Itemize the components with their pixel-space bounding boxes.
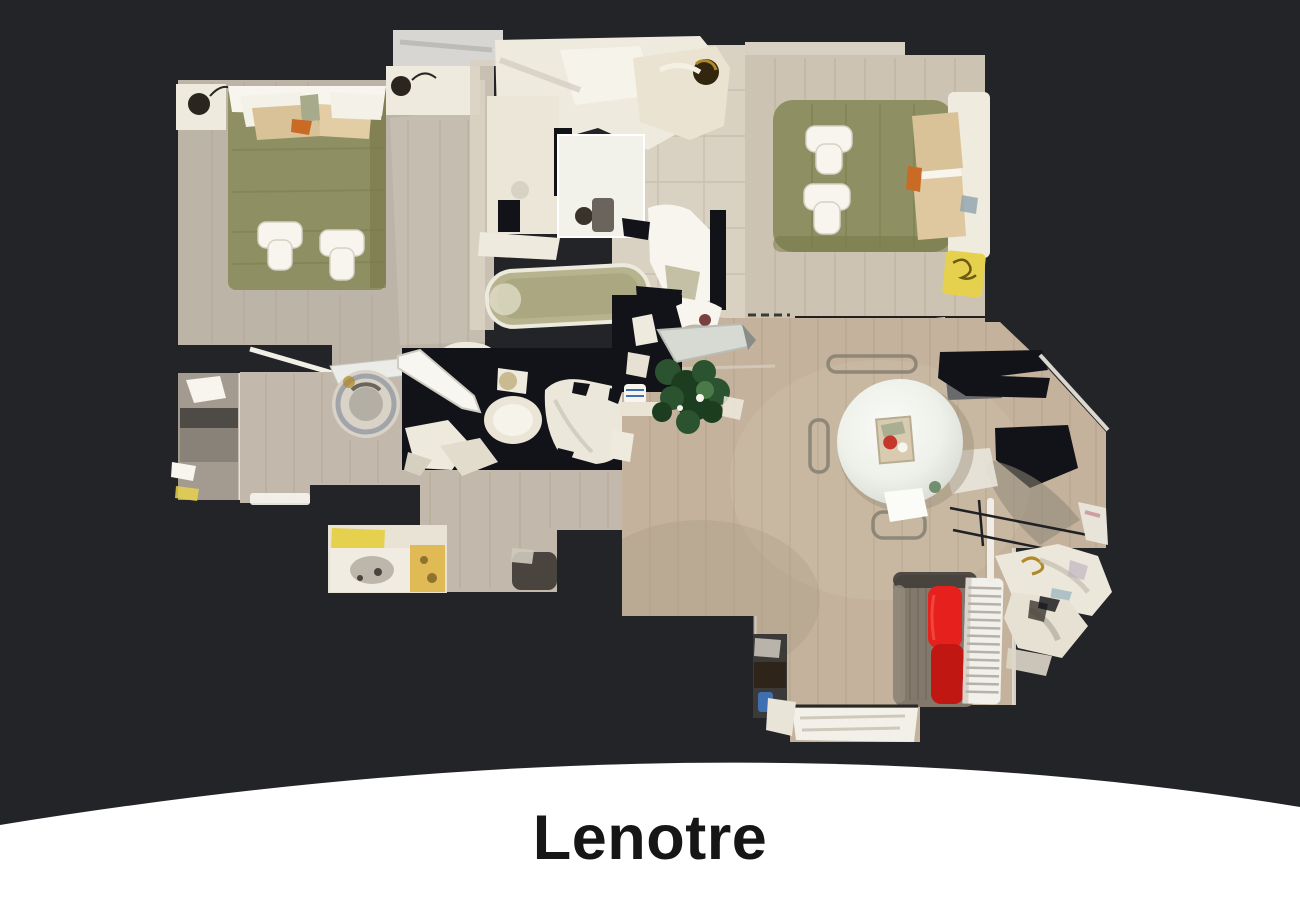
bedside-lamp-icon xyxy=(391,76,411,96)
dark-stool xyxy=(511,548,557,590)
washing-machine xyxy=(332,370,400,438)
yellow-bath-mat xyxy=(410,545,445,592)
window-sill xyxy=(766,698,918,742)
orange-accent xyxy=(906,166,922,192)
small-bathroom xyxy=(328,525,447,593)
room-middle-wing xyxy=(171,348,627,593)
shower-cabin xyxy=(487,96,559,234)
open-door xyxy=(250,349,336,374)
listing-title: Lenotre xyxy=(0,802,1300,874)
bedside-lamp-icon xyxy=(188,93,210,115)
floorplan-svg xyxy=(0,0,1300,900)
screenshot-root: Lenotre xyxy=(0,0,1300,900)
door-threshold xyxy=(250,493,310,505)
table-tray xyxy=(876,417,914,464)
yellow-towel xyxy=(942,250,986,298)
room-living-dining xyxy=(580,295,1112,742)
desk xyxy=(180,408,238,428)
bed-left xyxy=(228,86,386,290)
bed-right xyxy=(773,92,990,258)
shower-room xyxy=(398,348,627,476)
striped-cup xyxy=(624,384,646,404)
radiator xyxy=(962,578,1003,705)
red-cushion xyxy=(931,644,964,704)
